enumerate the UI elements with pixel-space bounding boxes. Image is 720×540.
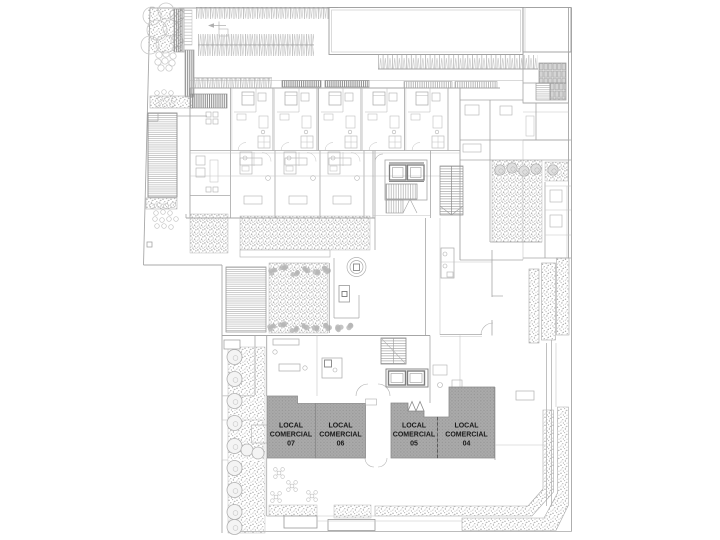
svg-text:04: 04 bbox=[463, 441, 471, 448]
svg-text:COMERCIAL: COMERCIAL bbox=[445, 432, 488, 439]
svg-text:06: 06 bbox=[337, 441, 345, 448]
svg-text:LOCAL: LOCAL bbox=[328, 423, 353, 430]
svg-text:COMERCIAL: COMERCIAL bbox=[319, 432, 362, 439]
svg-text:05: 05 bbox=[410, 441, 418, 448]
svg-text:LOCAL: LOCAL bbox=[402, 423, 427, 430]
svg-text:07: 07 bbox=[287, 441, 295, 448]
svg-text:COMERCIAL: COMERCIAL bbox=[393, 432, 436, 439]
svg-text:LOCAL: LOCAL bbox=[279, 423, 304, 430]
svg-text:COMERCIAL: COMERCIAL bbox=[270, 432, 313, 439]
svg-text:LOCAL: LOCAL bbox=[454, 423, 479, 430]
